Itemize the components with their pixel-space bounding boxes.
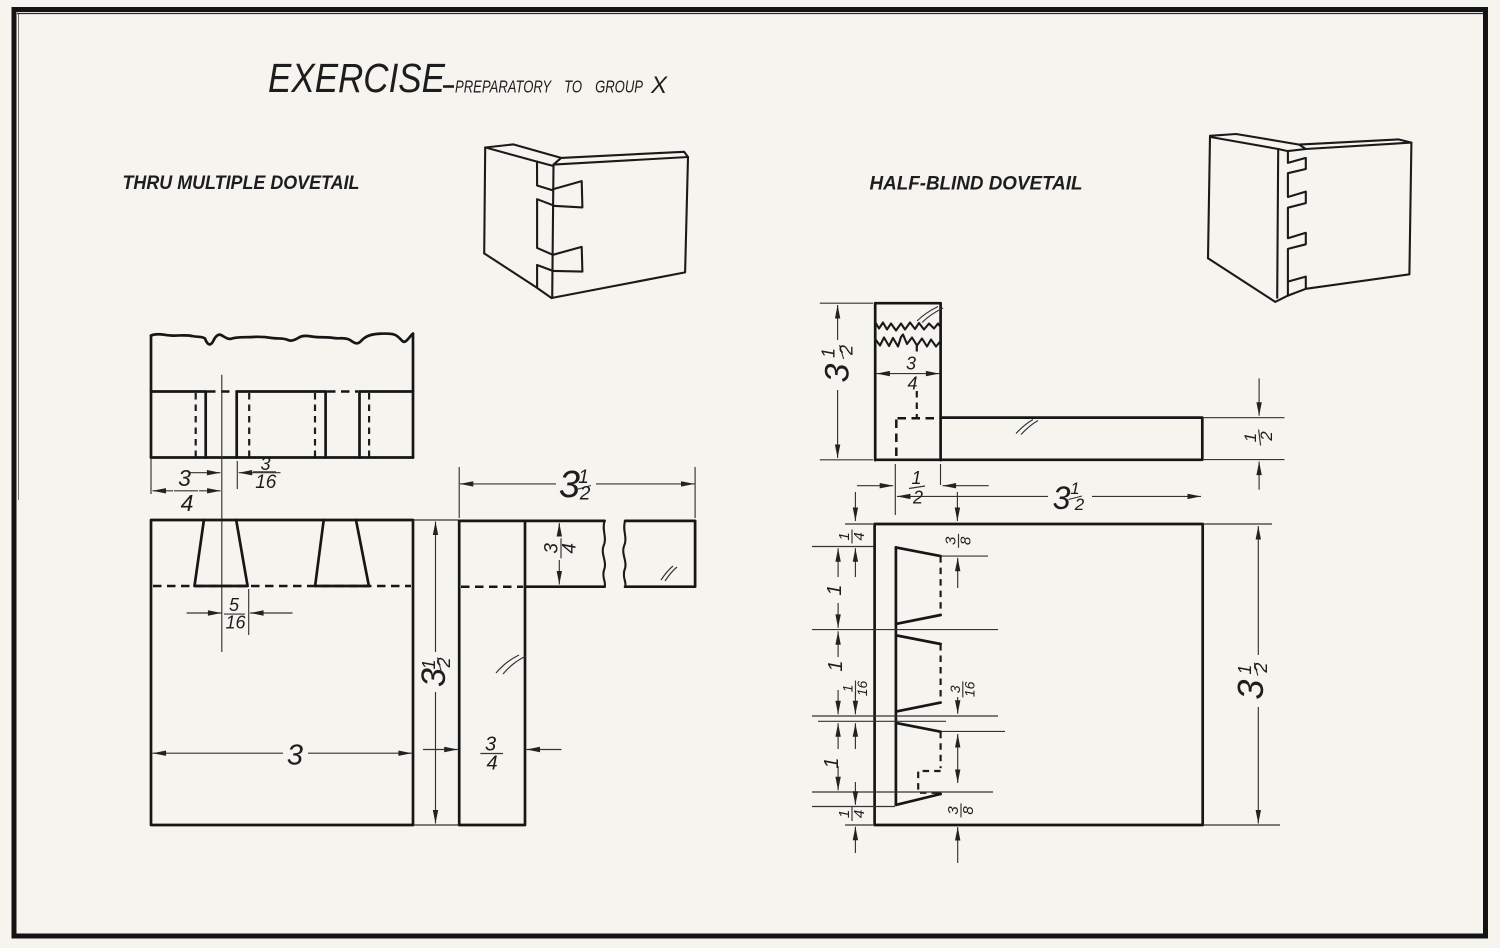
svg-text:1: 1 bbox=[825, 660, 847, 671]
svg-text:3: 3 bbox=[287, 740, 303, 772]
svg-text:1: 1 bbox=[911, 468, 921, 488]
svg-text:2: 2 bbox=[912, 488, 923, 508]
svg-text:16: 16 bbox=[854, 681, 870, 697]
svg-text:16: 16 bbox=[255, 472, 277, 493]
svg-text:4: 4 bbox=[851, 532, 868, 540]
svg-text:X: X bbox=[650, 72, 668, 99]
svg-text:3: 3 bbox=[260, 454, 270, 474]
svg-text:16: 16 bbox=[961, 681, 977, 697]
svg-text:4: 4 bbox=[851, 810, 868, 818]
svg-text:2: 2 bbox=[579, 484, 591, 505]
svg-text:HALF-BLIND DOVETAIL: HALF-BLIND DOVETAIL bbox=[870, 174, 1083, 195]
svg-text:3: 3 bbox=[819, 363, 857, 382]
svg-text:8: 8 bbox=[960, 806, 977, 815]
svg-text:4: 4 bbox=[486, 753, 497, 775]
svg-text:EXERCISE: EXERCISE bbox=[268, 55, 446, 101]
svg-text:3: 3 bbox=[559, 464, 580, 506]
svg-text:2: 2 bbox=[1251, 663, 1271, 674]
svg-text:THRU MULTIPLE DOVETAIL: THRU MULTIPLE DOVETAIL bbox=[123, 173, 360, 194]
svg-text:16: 16 bbox=[225, 613, 246, 633]
svg-text:4: 4 bbox=[560, 543, 581, 554]
svg-text:2: 2 bbox=[1257, 431, 1276, 442]
svg-text:2: 2 bbox=[434, 657, 454, 668]
svg-text:3: 3 bbox=[1230, 680, 1271, 700]
svg-text:3: 3 bbox=[906, 354, 916, 374]
svg-text:2: 2 bbox=[1074, 495, 1085, 514]
svg-text:4: 4 bbox=[907, 374, 917, 394]
svg-text:1: 1 bbox=[819, 348, 839, 358]
svg-text:4: 4 bbox=[181, 490, 194, 516]
svg-text:2: 2 bbox=[837, 345, 857, 356]
svg-text:3: 3 bbox=[178, 465, 191, 491]
svg-text:3: 3 bbox=[415, 668, 453, 687]
svg-text:1: 1 bbox=[824, 584, 846, 595]
svg-text:1: 1 bbox=[821, 757, 843, 768]
svg-text:8: 8 bbox=[958, 536, 975, 545]
svg-text:3: 3 bbox=[1053, 480, 1071, 516]
svg-text:PREPARATORY TO GROUP: PREPARATORY TO GROUP bbox=[455, 77, 643, 97]
